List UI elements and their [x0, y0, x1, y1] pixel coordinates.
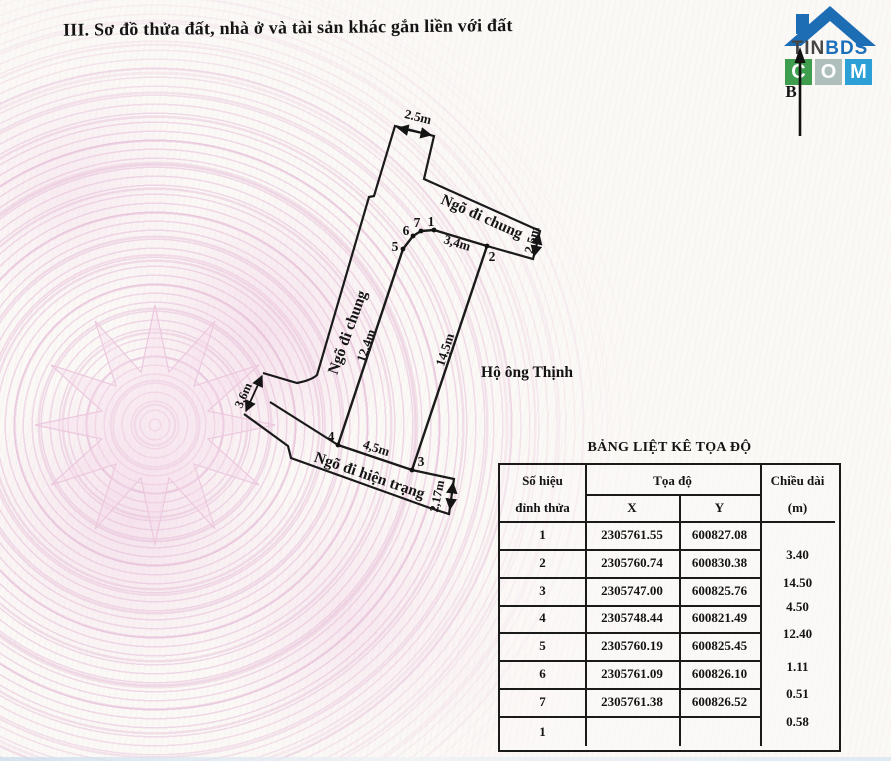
table-border	[500, 605, 762, 607]
segment-length: 1.11	[760, 657, 835, 677]
table-border	[585, 494, 762, 496]
table-row-x: 2305747.00	[585, 581, 679, 601]
table-border	[500, 716, 762, 718]
dimension-line-top	[398, 128, 431, 135]
dim-bottom-end-label: 2,17m	[427, 478, 448, 513]
table-row-id: 1	[500, 525, 585, 545]
vertex-label-2: 2	[489, 249, 496, 264]
alley-bottom-path	[244, 414, 454, 514]
logo-brand-tin: TIN	[792, 38, 826, 59]
table-row-x: 2305761.38	[585, 692, 679, 712]
table-row-y: 600821.49	[679, 608, 760, 628]
table-title: BẢNG LIỆT KÊ TỌA ĐỘ	[498, 440, 841, 456]
dim-2-3-label: 14,5m	[432, 331, 457, 368]
vertex-label-4: 4	[328, 429, 335, 444]
segment-length: 0.51	[760, 684, 835, 704]
segment-length: 14.50	[760, 573, 835, 593]
dim-right-end-label: 2,5m	[521, 225, 543, 255]
plot-outline	[338, 230, 487, 470]
dim-3-4-label: 4,5m	[361, 436, 392, 459]
table-row-y: 600827.08	[679, 525, 760, 545]
scanned-document-page: III. Sơ đồ thửa đất, nhà ở và tài sản kh…	[0, 0, 891, 761]
table-row-y: 600826.10	[679, 664, 760, 684]
alley-bottom-top-edge	[270, 402, 338, 445]
alley-left-label: Ngõ đi chung	[325, 288, 371, 377]
table-row-id: 1	[500, 722, 585, 742]
table-border	[500, 688, 762, 690]
header-length-line2: (m)	[760, 498, 835, 518]
table-border	[500, 632, 762, 634]
scan-edge	[0, 757, 891, 761]
pink-wash	[0, 60, 200, 320]
dimension-lines	[246, 128, 539, 509]
header-x: X	[585, 498, 679, 518]
dim-1-2-label: 3,4m	[442, 232, 472, 254]
alley-top-path	[263, 126, 540, 383]
table-row-x: 2305761.55	[585, 525, 679, 545]
vertex-label-6: 6	[403, 223, 410, 238]
vertex-label-7: 7	[414, 215, 421, 230]
table-row-id: 4	[500, 608, 585, 628]
table-row-x	[585, 722, 679, 742]
dimension-line-right-end	[534, 234, 539, 256]
tinbds-logo: TINBDS C O M	[782, 4, 878, 88]
table-row-id: 7	[500, 692, 585, 712]
logo-com-tile: C	[785, 59, 812, 85]
vertex-dots	[336, 228, 490, 473]
table-row-y: 600825.76	[679, 581, 760, 601]
table-row-id: 2	[500, 553, 585, 573]
alley-diagonal-label: Ngõ đi chung	[438, 191, 525, 242]
vertex-label-3: 3	[418, 454, 425, 469]
table-row-x: 2305760.19	[585, 636, 679, 656]
dim-top-label: 2.5m	[403, 106, 433, 127]
table-border	[500, 660, 762, 662]
pink-wash	[110, 190, 410, 470]
header-length-line1: Chiều dài	[760, 471, 835, 491]
coordinate-table-section: BẢNG LIỆT KÊ TỌA ĐỘ Số hiệu đỉnh thửa Tọ…	[498, 440, 841, 456]
dimension-line-left-end	[246, 376, 262, 411]
vertex-label-5: 5	[392, 239, 399, 254]
table-row-x: 2305760.74	[585, 553, 679, 573]
header-y: Y	[679, 498, 760, 518]
coordinate-table: Số hiệu đỉnh thửa Tọa độ X Y Chiều dài (…	[498, 463, 841, 752]
table-row-id: 5	[500, 636, 585, 656]
logo-brand-bds: BDS	[825, 38, 868, 59]
logo-com-row: C O M	[785, 59, 875, 85]
logo-brand-line: TINBDS	[782, 40, 878, 58]
segment-length: 3.40	[760, 545, 835, 565]
section-title: III. Sơ đồ thửa đất, nhà ở và tài sản kh…	[63, 14, 583, 40]
table-row-id: 3	[500, 581, 585, 601]
segment-length: 4.50	[760, 597, 835, 617]
alley-bottom-label: Ngõ đi hiện trạng	[312, 449, 427, 503]
dim-4-5-label: 12,4m	[353, 327, 378, 364]
table-row-id: 6	[500, 664, 585, 684]
table-border	[500, 577, 762, 579]
logo-com-tile: M	[845, 59, 872, 85]
header-coordinates: Tọa độ	[585, 471, 760, 491]
neighbor-label: Hộ ông Thịnh	[481, 364, 573, 381]
table-row-y: 600830.38	[679, 553, 760, 573]
header-vertex-id-line2: đỉnh thửa	[500, 498, 585, 518]
dimension-line-bottom-end	[450, 483, 453, 509]
header-vertex-id-line1: Số hiệu	[500, 471, 585, 491]
vertex-label-1: 1	[428, 214, 435, 229]
segment-length: 0.58	[760, 712, 835, 732]
table-row-y	[679, 722, 760, 742]
table-row-y: 600826.52	[679, 692, 760, 712]
dim-left-end-label: 3,6m	[232, 380, 256, 410]
table-border	[500, 521, 835, 523]
table-row-x: 2305748.44	[585, 608, 679, 628]
logo-com-tile: O	[815, 59, 842, 85]
table-row-y: 600825.45	[679, 636, 760, 656]
table-row-x: 2305761.09	[585, 664, 679, 684]
table-border	[500, 549, 762, 551]
segment-length: 12.40	[760, 624, 835, 644]
pink-wash	[0, 370, 300, 670]
pink-wash	[190, 480, 510, 760]
